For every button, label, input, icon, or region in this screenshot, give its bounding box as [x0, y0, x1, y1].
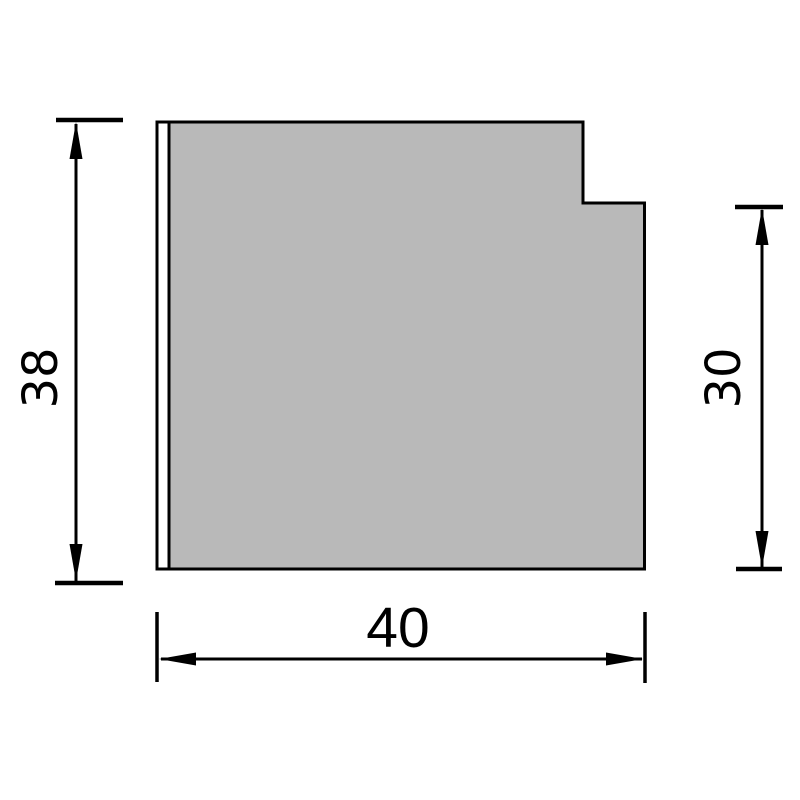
dim-bottom-arrow-right-icon: [606, 653, 643, 666]
dim-right-label: 30: [696, 347, 752, 408]
dimension-bottom: 40: [157, 596, 645, 683]
part-left-strip: [157, 122, 169, 569]
drawing-canvas: 38 30 40: [0, 0, 800, 800]
dimension-left: 38: [13, 120, 123, 583]
dim-left-label: 38: [13, 347, 69, 408]
dim-right-arrow-up-icon: [756, 208, 769, 245]
dim-bottom-label: 40: [366, 596, 429, 660]
dimension-right: 30: [696, 207, 783, 569]
dim-left-arrow-up-icon: [70, 122, 83, 159]
dim-bottom-arrow-left-icon: [159, 653, 196, 666]
part-body: [157, 122, 645, 569]
dim-right-arrow-down-icon: [756, 531, 769, 568]
technical-drawing: 38 30 40: [0, 0, 800, 800]
dim-left-arrow-down-icon: [70, 544, 83, 581]
